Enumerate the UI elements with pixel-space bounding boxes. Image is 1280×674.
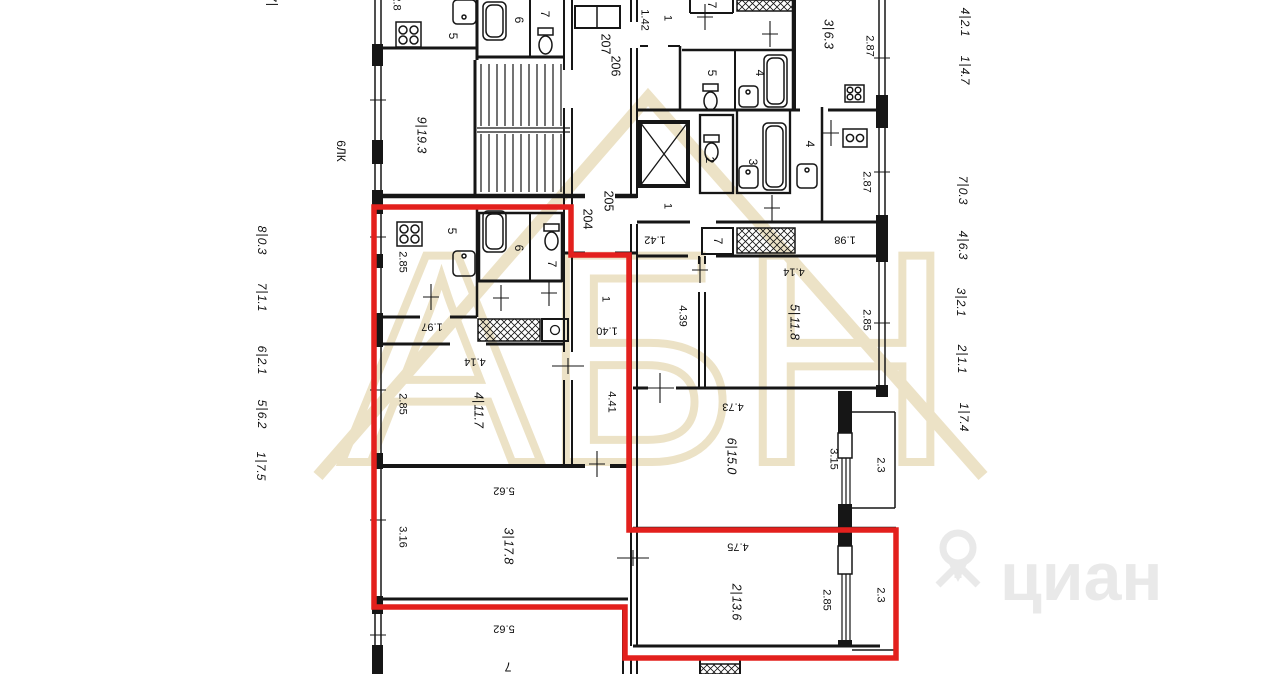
- riser-fraction: 7: [266, 0, 278, 7]
- unit-number: 207: [599, 34, 612, 55]
- dimension-label: 2.3: [875, 457, 886, 472]
- room-area-label: 411.7: [472, 392, 485, 428]
- room-tag: 7: [712, 238, 724, 245]
- bathtub-icon: [764, 55, 787, 107]
- room-area-label: 213.6: [730, 584, 743, 621]
- room-area-label: 317.8: [502, 528, 515, 565]
- bathtub-icon: [483, 2, 506, 40]
- riser-fraction: 70.3: [957, 176, 969, 205]
- dimension-label: 4.73: [722, 401, 743, 412]
- room-tag: 5: [446, 228, 458, 235]
- door-width-label: 1: [662, 15, 673, 21]
- room-area-label: 919.3: [415, 117, 428, 154]
- dimension-label: 4.41: [606, 391, 617, 412]
- room-tag: 5: [447, 33, 459, 40]
- stairwell-label: 6ЛК: [335, 140, 347, 162]
- toilet-icon: [703, 84, 718, 110]
- dimension-label: 5.62: [493, 623, 514, 634]
- unit-number: 204: [581, 209, 594, 230]
- pin-icon: [943, 533, 973, 563]
- riser-fraction: 17.5: [255, 452, 267, 481]
- cian-watermark: циан: [938, 533, 1163, 615]
- room-tag: 5: [706, 70, 718, 77]
- riser-fraction: 21.1: [956, 345, 968, 374]
- dimension-label: 1.42: [644, 234, 665, 245]
- dimension-label: 2.87: [864, 35, 875, 56]
- riser-fraction: 71.1: [256, 283, 268, 312]
- room-area-label: 36.3: [822, 19, 835, 49]
- room-area-label: 615.0: [725, 438, 738, 475]
- room-tag: 7: [706, 2, 718, 9]
- riser-fraction: 14.7: [959, 56, 971, 85]
- riser-fraction: 17.4: [958, 403, 970, 432]
- dimension-label: 4.39: [677, 305, 688, 326]
- stove-icon: [843, 129, 867, 147]
- dimension-label: 1.97: [421, 321, 442, 332]
- dimension-label: 7: [505, 660, 512, 673]
- unit-number: 205: [602, 191, 615, 212]
- room-tag: 6: [513, 17, 525, 24]
- riser-fraction: 32.1: [955, 288, 967, 317]
- riser-fraction: 80.3: [256, 226, 268, 255]
- door-width-label: 1: [662, 203, 673, 209]
- dimension-label: 2.85: [397, 393, 408, 414]
- room-tag: 7: [546, 261, 558, 268]
- room-area-label: 511.8: [788, 304, 801, 340]
- dimension-label: 3.15: [828, 448, 839, 469]
- riser-fraction: 42.1: [959, 8, 971, 37]
- room-tag: 7: [539, 11, 551, 18]
- pin-person-icon: [938, 566, 978, 585]
- dimension-label: 3.16: [397, 526, 408, 547]
- riser-fraction: 62.1: [256, 346, 268, 375]
- riser-fraction: 56.2: [256, 400, 268, 429]
- riser-fraction: 46.3: [957, 231, 969, 260]
- stove-icon: [845, 85, 864, 102]
- room-tag: 4: [804, 141, 816, 148]
- door-width-label: 1: [600, 296, 611, 302]
- dimension-label: 1.42: [639, 9, 650, 30]
- bathtub-icon: [763, 123, 786, 190]
- floorplan-screenshot: АБН циан: [0, 0, 1280, 674]
- sink-icon: [739, 166, 758, 188]
- toilet-icon: [538, 28, 553, 54]
- dimension-label: 1.40: [596, 325, 617, 336]
- stove-icon: [396, 22, 421, 47]
- dimension-label: 4.75: [727, 541, 748, 552]
- sink-icon: [739, 86, 758, 107]
- room-tag: 3: [747, 159, 759, 166]
- dimension-label: 2.8: [391, 0, 402, 11]
- floor-plan-drawing: АБН циан: [0, 0, 1280, 674]
- dimension-label: 5.62: [493, 485, 514, 496]
- dimension-label: 2.85: [397, 251, 408, 272]
- unit-number: 206: [609, 56, 622, 77]
- dimension-label: 2.87: [861, 171, 872, 192]
- dimension-label: 2.85: [861, 309, 872, 330]
- dimension-label: 4.14: [464, 356, 485, 367]
- cian-watermark-text: циан: [1000, 539, 1163, 615]
- dimension-label: 2.3: [875, 587, 886, 602]
- sink-icon: [797, 164, 817, 188]
- room-tag: 6: [513, 245, 525, 252]
- room-tag: 4: [754, 70, 766, 77]
- dimension-label: 2.85: [821, 589, 832, 610]
- dimension-label: 1.98: [834, 234, 855, 245]
- sink-icon: [453, 0, 476, 24]
- dimension-label: 4.14: [783, 266, 804, 277]
- room-tag: 2: [704, 157, 716, 164]
